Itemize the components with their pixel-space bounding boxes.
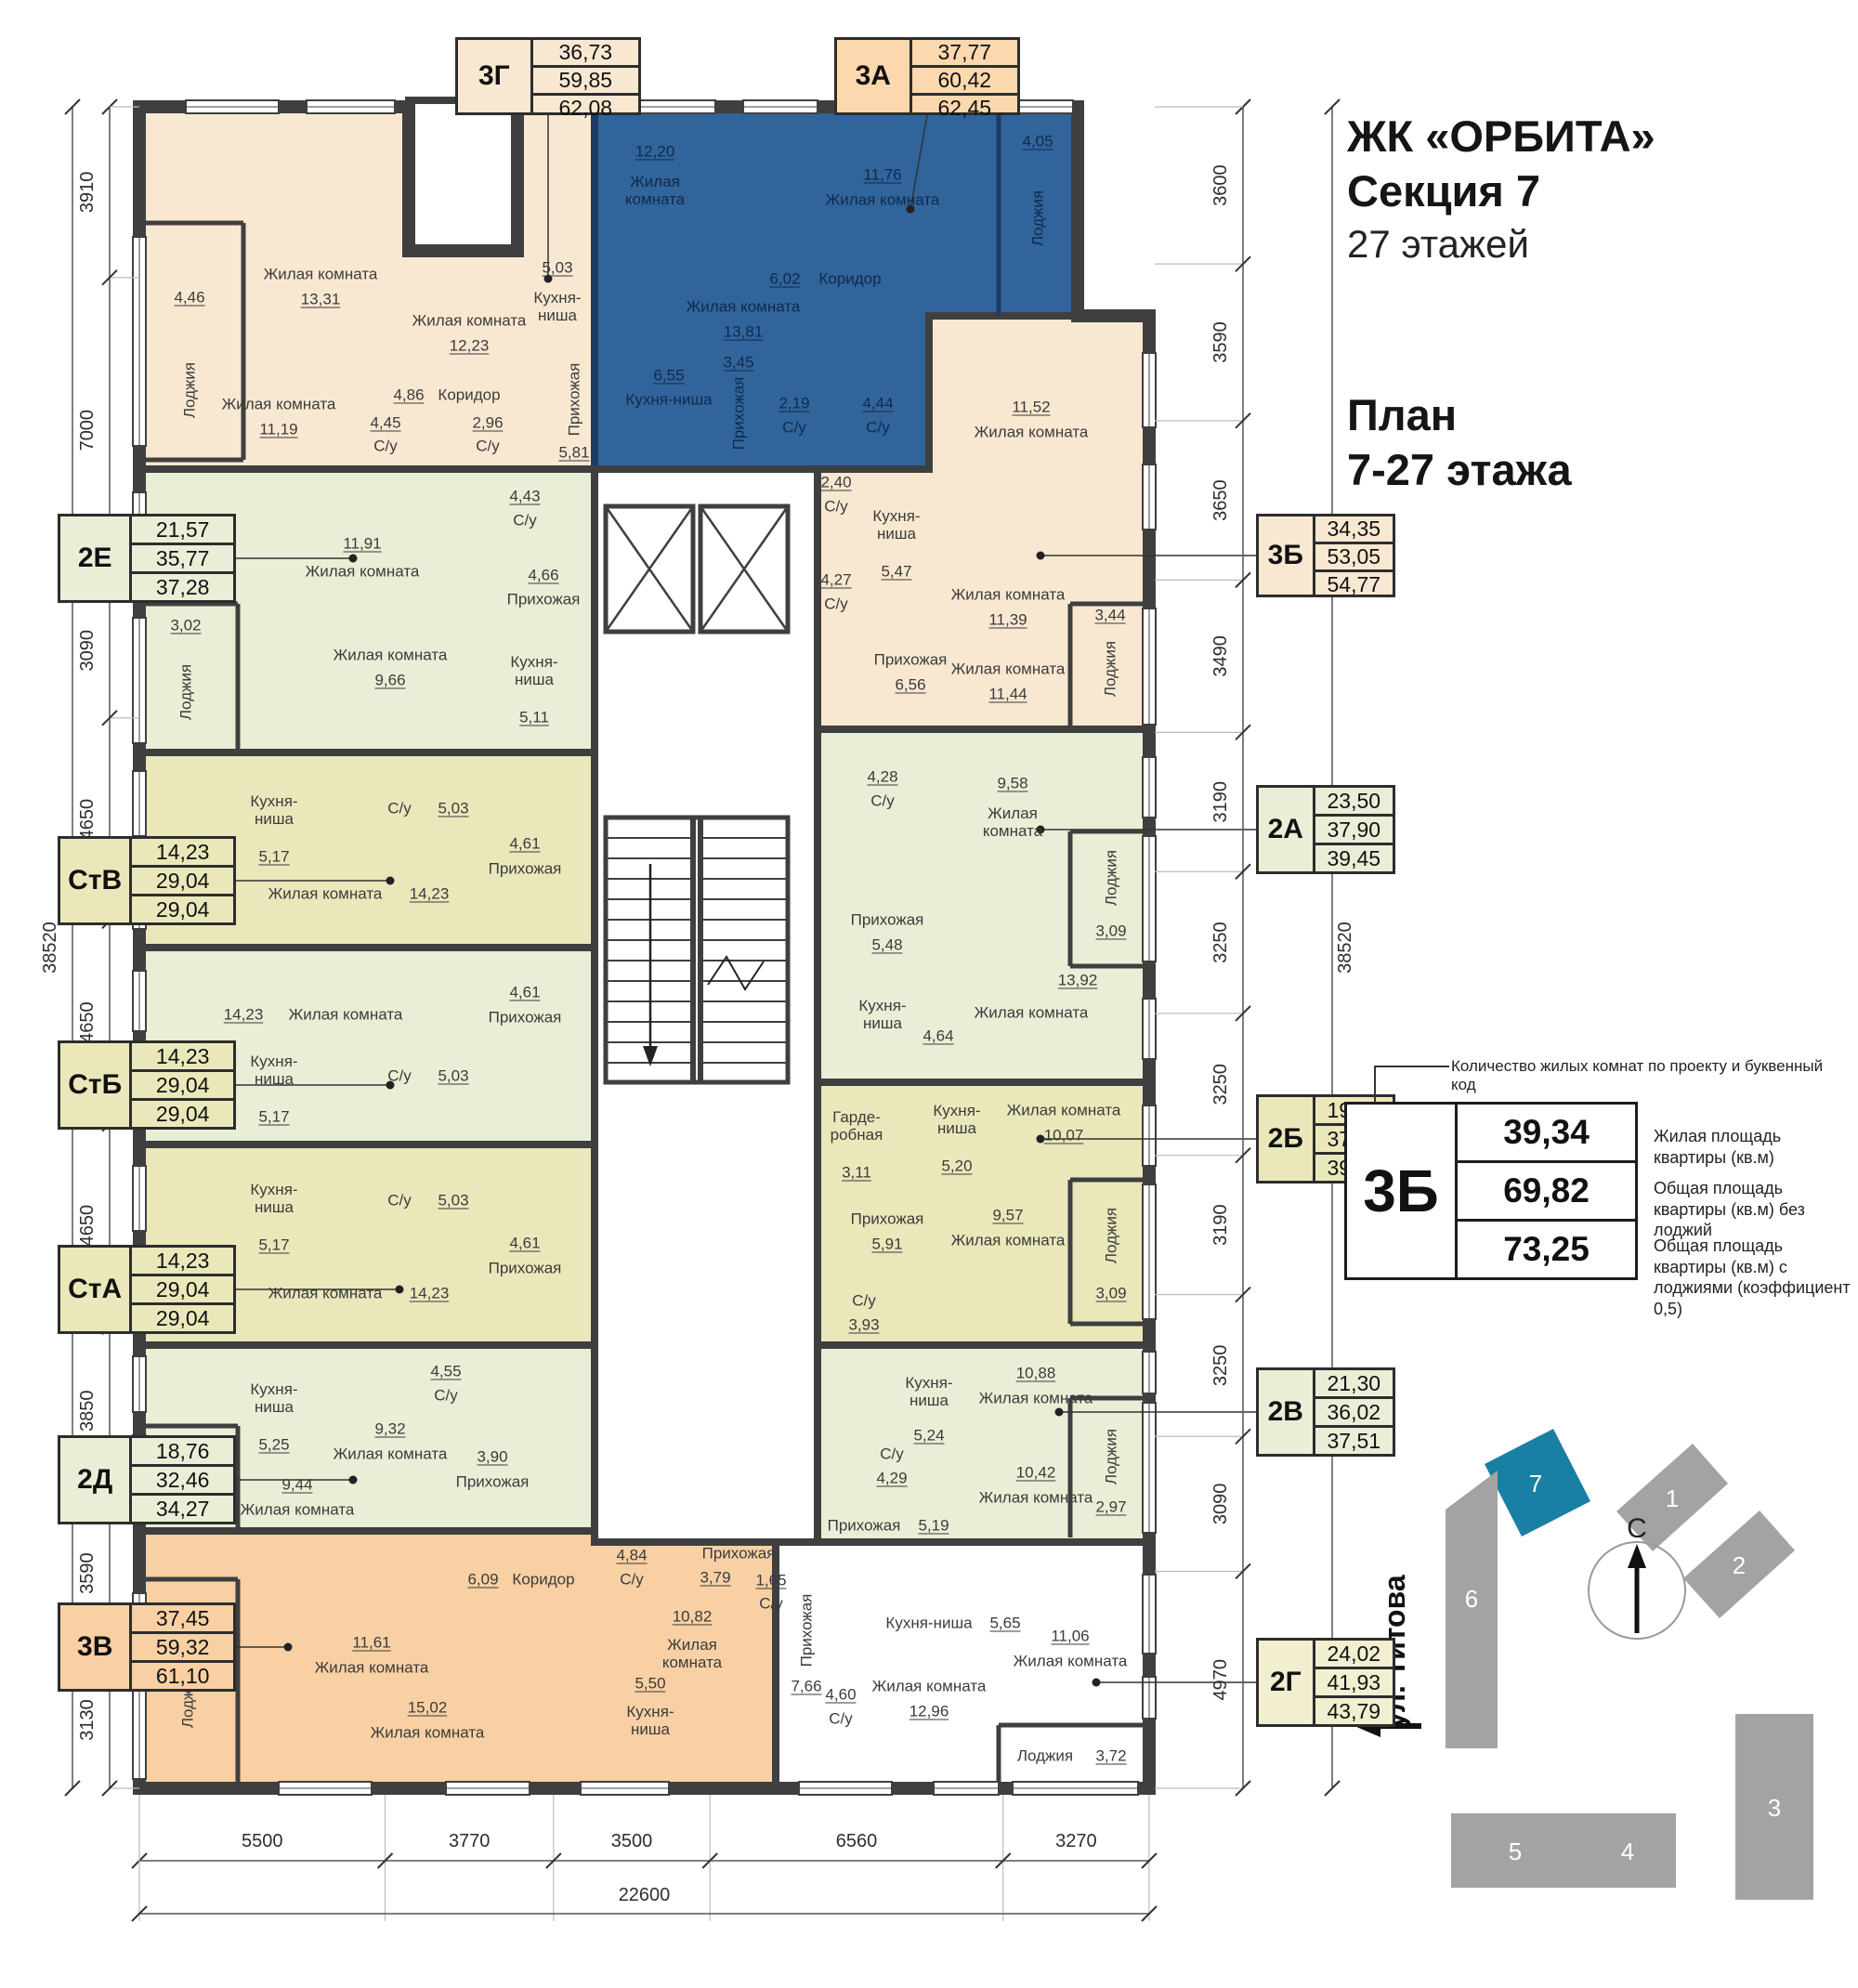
- room-area: 3,93: [848, 1315, 879, 1333]
- site-building-number-3: 3: [1768, 1794, 1781, 1822]
- site-building-number-6: 6: [1465, 1585, 1478, 1613]
- apartment-code: 2Е: [60, 517, 132, 600]
- apartment-label-3А[interactable]: 3А37,7760,4262,45: [834, 37, 1020, 115]
- room-label: Лоджия: [1028, 190, 1046, 246]
- room-label: Прихожая: [489, 859, 562, 877]
- apartment-area-value: 37,90: [1315, 817, 1393, 845]
- svg-text:3590: 3590: [1210, 321, 1231, 363]
- room-area: 10,07: [1044, 1126, 1084, 1144]
- page-header: ЖК «ОРБИТА» Секция 7 27 этажей: [1347, 110, 1655, 269]
- room-label: С/у: [620, 1570, 644, 1588]
- legend-value-living: 39,34: [1458, 1105, 1635, 1163]
- room-label: Прихожая: [874, 650, 948, 668]
- room-label: Жилая комната: [975, 423, 1089, 440]
- room-label: Кухня-ниша: [625, 390, 712, 408]
- room-label: Прихожая: [851, 910, 924, 928]
- room-area: 5,03: [542, 258, 572, 276]
- room-area: 11,52: [1012, 398, 1050, 415]
- room-label: Жилая комната: [1014, 1652, 1128, 1669]
- apartment-area-value: 37,51: [1315, 1428, 1393, 1454]
- svg-text:4650: 4650: [77, 1001, 98, 1043]
- room-area: 2,19: [779, 394, 809, 412]
- apartment-area-value: 29,04: [132, 868, 233, 896]
- room-label: С/у: [759, 1594, 783, 1612]
- room-area: 5,25: [258, 1435, 289, 1453]
- apartment-code: 3Б: [1259, 517, 1315, 595]
- room-area: 4,43: [509, 487, 540, 504]
- room-area: 5,50: [635, 1674, 665, 1692]
- room-area: 10,42: [1016, 1463, 1056, 1481]
- svg-text:3190: 3190: [1210, 781, 1231, 823]
- svg-text:3590: 3590: [77, 1552, 98, 1594]
- room-label: Жилая комната: [975, 804, 1050, 840]
- apartment-label-СтВ[interactable]: СтВ14,2329,0429,04: [58, 836, 236, 925]
- room-area: 13,81: [724, 322, 764, 340]
- room-label: Жилая комната: [289, 1005, 403, 1023]
- room-area: 15,02: [408, 1698, 448, 1716]
- room-area: 12,96: [909, 1702, 949, 1720]
- room-area: 5,17: [258, 847, 289, 865]
- room-label: Жилая комната: [268, 1284, 383, 1301]
- site-plan: С ул. Титова 1234567: [1354, 1429, 1813, 1900]
- site-building-number-7: 7: [1529, 1470, 1542, 1498]
- room-label: Жилая комната: [975, 1003, 1089, 1021]
- room-area: 10,82: [673, 1607, 713, 1625]
- room-label: Кухня-ниша: [920, 1102, 994, 1137]
- room-label: Кухня-ниша: [845, 997, 920, 1032]
- apartment-label-СтА[interactable]: СтА14,2329,0429,04: [58, 1245, 236, 1334]
- room-area: 4,28: [867, 767, 897, 785]
- room-label: С/у: [782, 418, 806, 436]
- svg-text:3090: 3090: [77, 630, 98, 672]
- apartment-area-value: 21,57: [132, 517, 233, 545]
- room-label: Жилая комната: [264, 265, 378, 282]
- room-label: Гарде-робная: [819, 1108, 894, 1144]
- floors-subtitle: 27 этажей: [1347, 219, 1655, 270]
- apartment-area-value: 14,23: [132, 839, 233, 868]
- room-area: 5,81: [558, 443, 589, 461]
- room-label: Жилая комната: [222, 395, 336, 412]
- svg-text:38520: 38520: [1335, 922, 1355, 974]
- room-label: С/у: [829, 1709, 853, 1727]
- room-label: Кухня-ниша: [885, 1614, 972, 1631]
- apartment-area-value: 18,76: [132, 1438, 233, 1467]
- room-area: 5,11: [519, 708, 549, 726]
- room-area: 3,79: [700, 1568, 730, 1586]
- room-area: 5,24: [913, 1426, 944, 1444]
- svg-text:3490: 3490: [1210, 635, 1231, 677]
- room-area: 3,11: [842, 1163, 871, 1181]
- apartment-area-value: 24,02: [1315, 1641, 1393, 1669]
- svg-text:4970: 4970: [1210, 1659, 1231, 1701]
- room-area: 6,55: [653, 366, 684, 384]
- elevator-shaft-right-icon: [700, 506, 788, 632]
- room-area: 4,45: [370, 413, 400, 431]
- room-label: Жилая комната: [306, 562, 420, 580]
- apartment-area-value: 43,79: [1315, 1698, 1393, 1724]
- room-area: 9,57: [992, 1206, 1023, 1223]
- room-label: С/у: [824, 595, 848, 612]
- room-area: 11,19: [259, 420, 297, 438]
- room-area: 6,02: [769, 269, 800, 287]
- apartment-area-value: 39,45: [1315, 845, 1393, 871]
- room-label: Прихожая: [489, 1259, 562, 1276]
- room-area: 9,32: [374, 1419, 405, 1437]
- apartment-area-value: 29,04: [132, 1072, 233, 1101]
- svg-text:3650: 3650: [1210, 479, 1231, 521]
- legend-value-total-loggia: 73,25: [1458, 1222, 1635, 1277]
- room-label: Лоджия: [1017, 1746, 1073, 1764]
- room-label: Жилая комната: [687, 297, 801, 315]
- room-label: Жилая комната: [1007, 1101, 1121, 1118]
- room-area: 4,61: [509, 983, 540, 1001]
- apartment-label-3Б[interactable]: 3Б34,3553,0554,77: [1256, 514, 1395, 597]
- svg-text:6560: 6560: [836, 1831, 878, 1851]
- room-area: 5,48: [871, 935, 902, 953]
- room-area: 11,06: [1051, 1627, 1089, 1644]
- svg-text:3270: 3270: [1055, 1831, 1097, 1851]
- room-label: Прихожая: [797, 1594, 815, 1668]
- site-building-numbers: 1234567: [1465, 1470, 1781, 1865]
- apartment-label-2Е[interactable]: 2Е21,5735,7737,28: [58, 514, 236, 603]
- room-label: Жилая комната: [951, 585, 1066, 603]
- svg-text:3130: 3130: [77, 1699, 98, 1741]
- apartment-area-value: 61,10: [132, 1663, 233, 1689]
- apartment-code: 3А: [837, 40, 912, 112]
- apartment-area-value: 54,77: [1315, 572, 1393, 597]
- room-area: 6,56: [895, 675, 925, 693]
- room-label: Кухня-ниша: [613, 1703, 687, 1738]
- room-label: Лоджия: [1102, 850, 1119, 906]
- apartment-area-value: 29,04: [132, 1101, 233, 1127]
- apartment-code: 2Г: [1259, 1641, 1315, 1724]
- apartment-label-2Д[interactable]: 2Д18,7632,4634,27: [58, 1435, 236, 1524]
- room-label: Лоджия: [1101, 641, 1119, 697]
- room-area: 11,61: [352, 1633, 390, 1651]
- room-area: 4,64: [922, 1027, 953, 1044]
- room-area: 10,88: [1016, 1364, 1056, 1381]
- room-area: 3,02: [170, 616, 201, 634]
- room-area: 3,90: [477, 1447, 507, 1465]
- apartment-area-value: 62,08: [533, 96, 638, 121]
- room-label: Жилая комната: [371, 1723, 485, 1741]
- room-label: С/у: [387, 1191, 412, 1209]
- svg-text:3090: 3090: [1210, 1484, 1231, 1525]
- svg-text:3500: 3500: [611, 1831, 653, 1851]
- room-label: Жилая комната: [241, 1500, 355, 1518]
- room-area: 5,20: [941, 1157, 972, 1174]
- legend-caption-living: Жилая площадь квартиры (кв.м): [1654, 1126, 1858, 1168]
- room-label: Прихожая: [456, 1472, 530, 1490]
- site-building-number-5: 5: [1509, 1838, 1522, 1865]
- legend-note: Количество жилых комнат по проекту и бук…: [1451, 1057, 1851, 1094]
- legend-value-total: 69,82: [1458, 1163, 1635, 1222]
- room-area: 12,23: [450, 336, 490, 354]
- room-label: Жилая комната: [872, 1677, 987, 1694]
- svg-text:7000: 7000: [77, 410, 98, 451]
- room-area: 11,76: [863, 165, 901, 183]
- apartment-area-value: 60,42: [912, 68, 1017, 96]
- apartment-area-value: 59,32: [132, 1634, 233, 1663]
- room-area: 3,09: [1095, 922, 1126, 939]
- room-area: 5,03: [438, 799, 468, 817]
- svg-text:3190: 3190: [1210, 1204, 1231, 1246]
- svg-text:4650: 4650: [77, 1205, 98, 1247]
- room-area: 5,03: [438, 1066, 468, 1084]
- room-label: Жилая комната: [334, 646, 448, 663]
- room-area: 12,20: [635, 142, 675, 160]
- apartment-area-value: 29,04: [132, 1305, 233, 1331]
- room-area: 4,61: [509, 1234, 540, 1251]
- room-area: 4,61: [509, 834, 540, 852]
- room-area: 3,44: [1094, 606, 1125, 623]
- stairs-icon: [606, 817, 788, 1082]
- apartment-code: 2А: [1259, 788, 1315, 871]
- room-area: 6,09: [467, 1570, 498, 1588]
- room-label: С/у: [387, 799, 412, 817]
- apartment-area-value: 29,04: [132, 1276, 233, 1305]
- apartment-label-2А[interactable]: 2А23,5037,9039,45: [1256, 785, 1395, 874]
- room-area: 5,91: [871, 1235, 902, 1252]
- room-label: Лоджия: [1102, 1208, 1119, 1263]
- plan-title: План 7-27 этажа: [1347, 388, 1572, 498]
- room-label: Жилая комната: [979, 1389, 1093, 1406]
- room-label: Кухня-ниша: [237, 1053, 311, 1088]
- apartment-code: 2Д: [60, 1438, 132, 1522]
- room-area: 5,17: [258, 1107, 289, 1125]
- room-area: 4,27: [820, 570, 851, 588]
- apartment-area-value: 53,05: [1315, 544, 1393, 572]
- room-label: С/у: [434, 1386, 458, 1404]
- room-area: 13,31: [301, 290, 341, 307]
- room-label: Прихожая: [828, 1516, 901, 1534]
- apartment-label-3Г[interactable]: 3Г36,7359,8562,08: [455, 37, 641, 115]
- apartment-area-value: 29,04: [132, 896, 233, 922]
- room-label: Прихожая: [507, 590, 581, 608]
- room-area: 4,66: [528, 566, 558, 583]
- room-area: 4,84: [616, 1546, 647, 1563]
- room-area: 11,39: [988, 610, 1027, 628]
- apartment-code: 3В: [60, 1605, 132, 1689]
- apartment-area-value: 37,45: [132, 1605, 233, 1634]
- room-label: Кухня-ниша: [520, 289, 595, 324]
- apartment-code: СтА: [60, 1248, 132, 1331]
- svg-text:5500: 5500: [242, 1831, 283, 1851]
- apartment-area-value: 14,23: [132, 1043, 233, 1072]
- room-area: 9,58: [997, 774, 1027, 791]
- room-label: Прихожая: [702, 1544, 776, 1562]
- room-label: С/у: [476, 437, 500, 454]
- apartment-area-value: 14,23: [132, 1248, 233, 1276]
- apartment-code: СтВ: [60, 839, 132, 922]
- room-area: 2,96: [472, 413, 503, 431]
- elevator-shaft-left-icon: [606, 506, 693, 632]
- room-area: 9,66: [374, 671, 405, 688]
- apartment-code: СтБ: [60, 1043, 132, 1127]
- room-label: Кухня-ниша: [237, 1181, 311, 1216]
- svg-text:38520: 38520: [40, 922, 60, 974]
- room-area: 14,23: [410, 884, 450, 902]
- room-label: Кухня-ниша: [497, 653, 571, 688]
- apartment-area-value: 59,85: [533, 68, 638, 96]
- room-label: Лоджия: [1102, 1429, 1119, 1484]
- room-label: Прихожая: [489, 1008, 562, 1026]
- apartment-code: 2Б: [1259, 1097, 1315, 1181]
- svg-text:3910: 3910: [77, 172, 98, 214]
- legend-caption-loggia: Общая площадь квартиры (кв.м) с лоджиями…: [1654, 1236, 1858, 1319]
- room-area: 4,29: [876, 1469, 907, 1486]
- room-label: Прихожая: [729, 377, 747, 451]
- room-label: С/у: [387, 1066, 412, 1084]
- room-label: С/у: [513, 511, 537, 529]
- room-area: 5,47: [881, 562, 911, 580]
- svg-text:4650: 4650: [77, 799, 98, 841]
- svg-text:3250: 3250: [1210, 1064, 1231, 1105]
- floor-plan-page: { "header": { "complex": "ЖК «ОРБИТА»", …: [0, 0, 1858, 1988]
- site-building-number-2: 2: [1733, 1551, 1746, 1579]
- room-area: 2,40: [820, 473, 851, 490]
- room-label: Жилая комната: [951, 1231, 1066, 1249]
- room-label: С/у: [870, 791, 895, 809]
- room-area: 5,19: [918, 1516, 949, 1534]
- room-label: Жилая комната: [315, 1658, 429, 1676]
- apartment-area-value: 21,30: [1315, 1370, 1393, 1399]
- room-area: 4,05: [1022, 132, 1053, 150]
- apartment-area-value: 37,77: [912, 40, 1017, 68]
- legend-sample-box: 3Б 39,34 69,82 73,25: [1344, 1102, 1638, 1280]
- room-label: Коридор: [818, 269, 881, 287]
- svg-text:3600: 3600: [1210, 164, 1231, 206]
- apartment-label-2Г[interactable]: 2Г24,0241,9343,79: [1256, 1638, 1395, 1727]
- room-area: 4,86: [393, 386, 424, 403]
- room-area: 11,91: [343, 534, 381, 552]
- room-label: Кухня-ниша: [892, 1374, 966, 1409]
- apartment-area-value: 35,77: [132, 545, 233, 574]
- room-label: Жилая комната: [655, 1636, 729, 1671]
- room-label: Жилая комната: [951, 660, 1066, 677]
- svg-text:3250: 3250: [1210, 1345, 1231, 1387]
- apartment-area-value: 32,46: [132, 1467, 233, 1496]
- room-label: Жилая комната: [618, 173, 692, 208]
- room-area: 2,97: [1095, 1498, 1126, 1515]
- apartment-area-value: 36,73: [533, 40, 638, 68]
- room-area: 9,44: [281, 1475, 312, 1493]
- room-area: 3,09: [1095, 1284, 1126, 1301]
- legend-caption-total: Общая площадь квартиры (кв.м) без лоджий: [1654, 1178, 1858, 1241]
- room-area: 3,72: [1095, 1746, 1126, 1764]
- room-area: 4,60: [825, 1685, 856, 1703]
- apartment-area-value: 62,45: [912, 96, 1017, 121]
- site-building-number-4: 4: [1621, 1838, 1634, 1865]
- room-label: С/у: [880, 1445, 904, 1462]
- room-area: 4,44: [862, 394, 893, 412]
- room-label: Жилая комната: [979, 1488, 1093, 1506]
- apartment-area-value: 34,35: [1315, 517, 1393, 544]
- room-area: 13,92: [1058, 971, 1098, 988]
- room-label: Прихожая: [565, 363, 582, 437]
- room-label: Жилая комната: [334, 1445, 448, 1462]
- facade-notch: [409, 100, 517, 251]
- room-area: 7,66: [791, 1677, 821, 1694]
- svg-text:3850: 3850: [77, 1391, 98, 1432]
- room-label: Лоджия: [180, 362, 198, 418]
- room-area: 11,44: [988, 685, 1027, 702]
- apartment-code: 2В: [1259, 1370, 1315, 1454]
- room-label: Лоджия: [177, 664, 194, 720]
- svg-text:3250: 3250: [1210, 922, 1231, 963]
- room-area: 14,23: [410, 1284, 450, 1301]
- apartment-area-value: 37,28: [132, 574, 233, 600]
- apartment-label-СтБ[interactable]: СтБ14,2329,0429,04: [58, 1040, 236, 1130]
- room-label: С/у: [866, 418, 890, 436]
- site-building-number-1: 1: [1666, 1484, 1679, 1512]
- room-area: 5,65: [989, 1614, 1020, 1631]
- room-label: Жилая комната: [826, 190, 940, 208]
- room-area: 5,03: [438, 1191, 468, 1209]
- room-area: 4,46: [174, 288, 204, 306]
- room-area: 14,23: [224, 1005, 264, 1023]
- apartment-label-3В[interactable]: 3В37,4559,3261,10: [58, 1602, 236, 1692]
- section-title: Секция 7: [1347, 164, 1655, 219]
- room-label: Кухня-ниша: [237, 1380, 311, 1416]
- apartment-area-value: 36,02: [1315, 1399, 1393, 1428]
- room-label: С/у: [852, 1291, 876, 1309]
- room-label: С/у: [824, 497, 848, 515]
- apartment-area-value: 41,93: [1315, 1669, 1393, 1698]
- svg-text:3770: 3770: [449, 1831, 491, 1851]
- svg-text:22600: 22600: [619, 1885, 671, 1905]
- legend-code: 3Б: [1347, 1105, 1458, 1277]
- room-label: Коридор: [438, 386, 500, 403]
- apartment-label-2В[interactable]: 2В21,3036,0237,51: [1256, 1367, 1395, 1457]
- room-label: Кухня-ниша: [237, 792, 311, 828]
- room-area: 1,65: [755, 1571, 786, 1589]
- room-area: 5,17: [258, 1236, 289, 1253]
- room-label: Жилая комната: [268, 884, 383, 902]
- room-label: Кухня-ниша: [859, 507, 934, 543]
- room-area: 3,45: [723, 353, 753, 371]
- room-label: Жилая комната: [412, 311, 527, 329]
- room-label: Прихожая: [851, 1210, 924, 1227]
- complex-title: ЖК «ОРБИТА»: [1347, 110, 1655, 164]
- apartment-code: 3Г: [458, 40, 533, 112]
- room-area: 4,55: [430, 1362, 461, 1380]
- room-label: Коридор: [512, 1570, 574, 1588]
- room-label: С/у: [373, 437, 398, 454]
- north-label: С: [1627, 1513, 1647, 1544]
- apartment-area-value: 34,27: [132, 1496, 233, 1522]
- apartment-area-value: 23,50: [1315, 788, 1393, 817]
